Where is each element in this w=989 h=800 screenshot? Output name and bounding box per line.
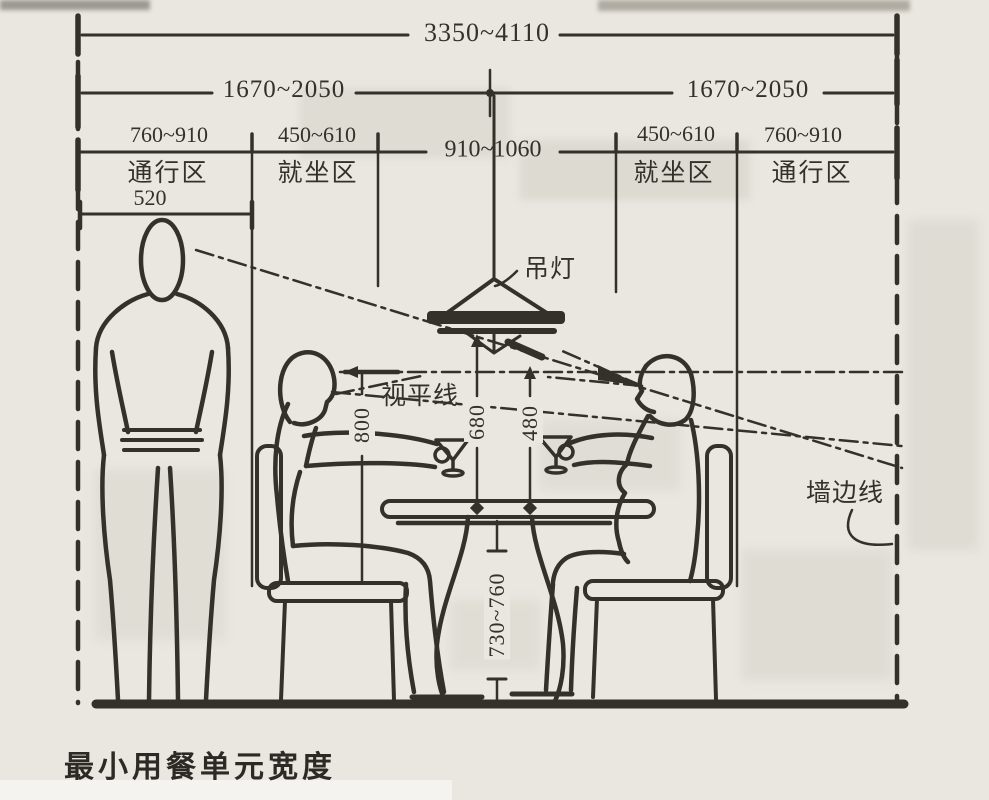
chair-right (585, 446, 731, 699)
zone-right-passage: 通行区 (771, 153, 852, 189)
dim-overall: 3350~4110 (424, 18, 550, 48)
dim-right-passage: 760~910 (764, 122, 842, 148)
dim-table-width: 910~1060 (445, 137, 542, 164)
figure-caption: 最小用餐单元宽度 (64, 742, 336, 786)
dim-person-width: 520 (134, 185, 167, 211)
wine-glass-right (539, 437, 571, 473)
dimension-diagram (0, 0, 989, 800)
zone-right-seat: 就坐区 (633, 153, 714, 189)
dim-eye-to-table: 480 (517, 403, 543, 443)
chair-left (257, 446, 407, 700)
pendant-lamp-drawing (427, 96, 565, 357)
standing-figure (95, 220, 228, 700)
lamp-leader-line (495, 271, 517, 286)
wall-edge-line-label: 墙边线 (806, 473, 884, 509)
dim-left-seat: 450~610 (278, 122, 356, 148)
wall-edge-leader-line (848, 510, 892, 545)
scanned-book-page: 3350~4110 1670~2050 1670~2050 760~910 45… (0, 0, 989, 800)
eye-level-line-label: 视平线 (381, 376, 459, 412)
dim-seat-to-eye: 800 (349, 405, 375, 445)
dim-right-seat: 450~610 (637, 121, 715, 147)
zone-left-seat: 就坐区 (277, 153, 358, 189)
zone-left-passage: 通行区 (127, 153, 208, 189)
pendant-lamp-label: 吊灯 (524, 249, 576, 285)
dim-left-passage: 760~910 (130, 122, 208, 148)
dim-table-height: 730~760 (484, 571, 510, 660)
dim-lamp-to-table: 680 (464, 402, 490, 442)
wine-glass-left (436, 440, 468, 476)
dim-left-half: 1670~2050 (223, 76, 346, 104)
dim-right-half: 1670~2050 (687, 76, 810, 104)
